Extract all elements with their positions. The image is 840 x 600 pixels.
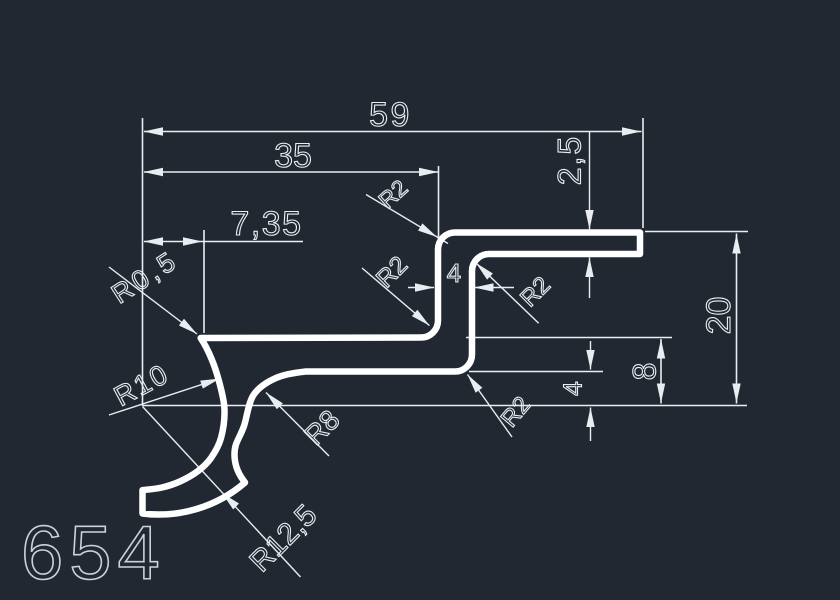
svg-text:59: 59 (369, 96, 412, 134)
svg-text:654: 654 (21, 511, 166, 596)
svg-text:2,5: 2,5 (552, 135, 588, 185)
svg-text:8: 8 (627, 363, 663, 381)
svg-text:35: 35 (274, 137, 312, 175)
svg-text:7,35: 7,35 (230, 205, 302, 243)
svg-text:4: 4 (447, 258, 461, 288)
svg-text:20: 20 (700, 297, 738, 335)
svg-text:4: 4 (558, 381, 588, 395)
